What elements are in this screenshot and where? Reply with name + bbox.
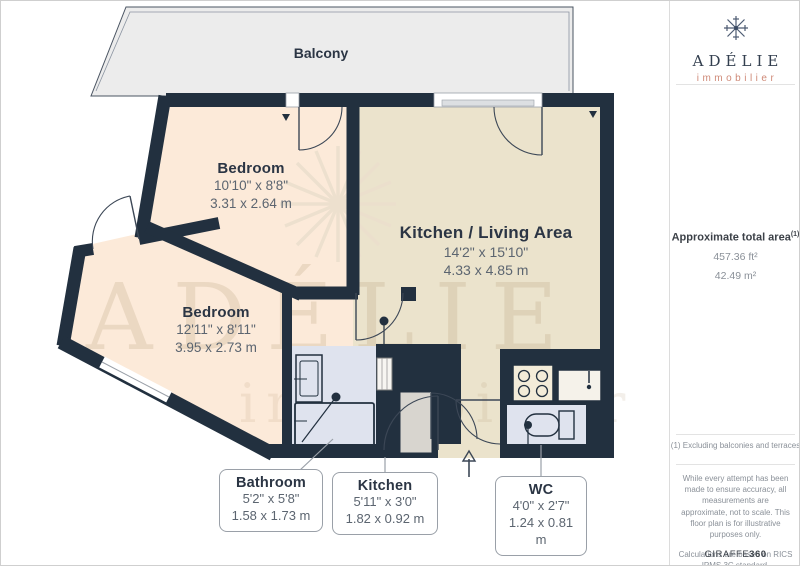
total-area-superscript: (1) — [791, 231, 800, 238]
floorplan-page: ADÉLIE immobilier — [0, 0, 800, 566]
room-name: Kitchen — [341, 478, 429, 494]
info-sidebar: ADÉLIE immobilier Approximate total area… — [669, 1, 800, 566]
callout-kitchen: Kitchen 5'11" x 3'0" 1.82 x 0.92 m — [332, 472, 438, 535]
total-area-m: 42.49 m² — [670, 270, 800, 282]
room-dims-metric: 3.31 x 2.64 m — [210, 195, 292, 213]
room-dims-imperial: 12'11" x 8'11" — [175, 321, 257, 339]
area-footnote: (1) Excluding balconies and terraces — [670, 441, 800, 450]
kitchen-counter — [400, 392, 432, 453]
snowflake-icon — [721, 13, 751, 43]
snowflake-watermark-icon — [280, 146, 396, 262]
wc-room — [507, 405, 586, 444]
divider — [676, 84, 795, 85]
room-name: Bedroom — [175, 304, 257, 321]
callout-bathroom: Bathroom 5'2" x 5'8" 1.58 x 1.73 m — [219, 469, 323, 532]
room-dims-imperial: 5'2" x 5'8" — [228, 491, 314, 508]
room-name: Kitchen / Living Area — [400, 223, 573, 243]
room-label-bedroom-left: Bedroom 12'11" x 8'11" 3.95 x 2.73 m — [175, 304, 257, 357]
total-area-ft: 457.36 ft² — [670, 251, 800, 263]
sliding-door-sill — [442, 100, 534, 106]
callout-wc: WC 4'0" x 2'7" 1.24 x 0.81 m — [495, 476, 587, 556]
divider — [676, 464, 795, 465]
total-area-block: Approximate total area(1) 457.36 ft² 42.… — [670, 231, 800, 282]
logo-brand: ADÉLIE — [670, 52, 800, 70]
total-area-title: Approximate total area(1) — [670, 231, 800, 244]
disclaimer-text: While every attempt has been made to ens… — [678, 473, 793, 540]
room-dims-metric: 3.95 x 2.73 m — [175, 339, 257, 357]
logo-tagline: immobilier — [670, 73, 800, 84]
kitchen-sink-icon — [558, 370, 601, 401]
room-dims-metric: 1.24 x 0.81 m — [504, 515, 578, 549]
room-dims-imperial: 10'10" x 8'8" — [210, 177, 292, 195]
divider — [676, 434, 795, 435]
room-dims-imperial: 5'11" x 3'0" — [341, 494, 429, 511]
room-dims-metric: 1.58 x 1.73 m — [228, 508, 314, 525]
giraffe360-brand: GIRAFFE360 — [670, 549, 800, 560]
room-dims-metric: 4.33 x 4.85 m — [400, 261, 573, 279]
room-label-kitchen-living: Kitchen / Living Area 14'2" x 15'10" 4.3… — [400, 223, 573, 280]
duct-icon — [377, 358, 392, 390]
total-area-title-text: Approximate total area — [672, 232, 791, 244]
bedroom-balcony-window — [286, 93, 299, 107]
room-name: WC — [504, 482, 578, 498]
hob-icon — [513, 365, 553, 401]
room-dims-metric: 1.82 x 0.92 m — [341, 511, 429, 528]
room-label-bedroom-top: Bedroom 10'10" x 8'8" 3.31 x 2.64 m — [210, 160, 292, 213]
balcony-label: Balcony — [294, 45, 348, 61]
giraffe-name: GIRAFFE — [704, 549, 749, 560]
giraffe-number: 360 — [749, 549, 766, 560]
room-dims-imperial: 14'2" x 15'10" — [400, 243, 573, 261]
room-name: Bathroom — [228, 475, 314, 491]
logo: ADÉLIE immobilier — [670, 13, 800, 84]
room-dims-imperial: 4'0" x 2'7" — [504, 498, 578, 515]
room-name: Bedroom — [210, 160, 292, 177]
